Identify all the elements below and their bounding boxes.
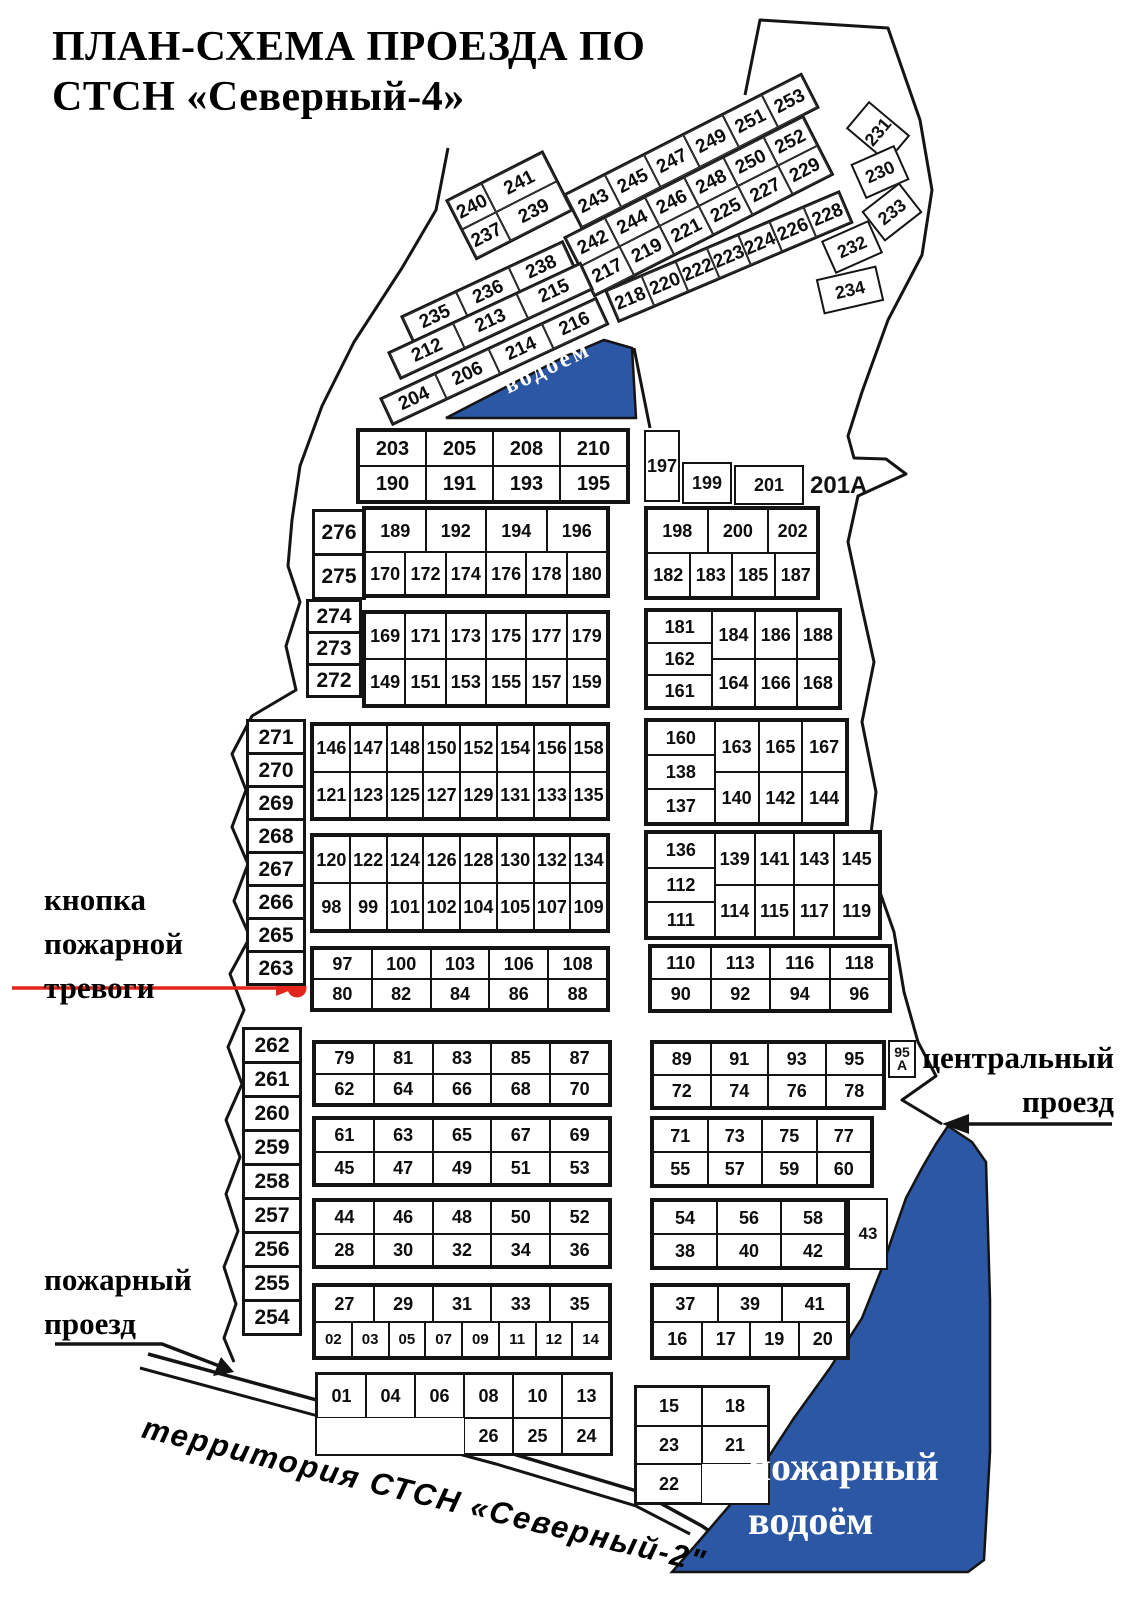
plot-05: 05 [389, 1322, 426, 1358]
plot-block-160-144: 160138137163140165142167144 [644, 718, 849, 826]
plot-114: 114 [715, 885, 755, 937]
plot-101: 101 [387, 883, 424, 930]
plot-67: 67 [491, 1119, 550, 1152]
plot-145: 145 [834, 833, 879, 885]
plot-125: 125 [387, 772, 424, 819]
plot-16: 16 [653, 1322, 702, 1358]
plot-176: 176 [486, 552, 526, 595]
plot-168: 168 [797, 659, 839, 707]
plot-39: 39 [718, 1286, 783, 1322]
plot-row: 189192194196 [365, 509, 607, 552]
plot-43: 43 [848, 1198, 888, 1270]
plot-column-276-275: 276275 [312, 512, 366, 600]
plot-04: 04 [366, 1374, 415, 1418]
plot-15: 15 [636, 1387, 702, 1426]
plot-99: 99 [350, 883, 387, 930]
plot-189: 189 [365, 509, 426, 552]
plot-row: 2729313335 [315, 1286, 609, 1322]
fire-pond-label-line: водоём [748, 1494, 939, 1548]
plot-175: 175 [486, 613, 526, 659]
plot-column: 160138137 [647, 721, 715, 823]
plot-162: 162 [647, 643, 712, 675]
plot-102: 102 [423, 883, 460, 930]
plot-128: 128 [460, 836, 497, 883]
plot-66: 66 [433, 1074, 492, 1105]
title-line-1: ПЛАН-СХЕМА ПРОЕЗДА ПО [52, 22, 645, 72]
plot-70: 70 [550, 1074, 609, 1105]
plot-268: 268 [246, 818, 306, 854]
plot-block-61-53: 61636567694547495153 [312, 1116, 612, 1187]
plot-75: 75 [762, 1119, 817, 1152]
plot-148: 148 [387, 725, 424, 772]
plot-163: 163 [715, 721, 759, 772]
plot-14: 14 [572, 1322, 609, 1358]
plot-198: 198 [647, 509, 708, 553]
plot-109: 109 [570, 883, 607, 930]
plot-91: 91 [711, 1043, 769, 1075]
plot-51: 51 [491, 1152, 550, 1185]
plot-147: 147 [350, 725, 387, 772]
plot-116: 116 [770, 947, 830, 979]
plot-22: 22 [636, 1464, 702, 1503]
plot-block-79-70: 79818385876264666870 [312, 1040, 612, 1107]
plot-03: 03 [352, 1322, 389, 1358]
plot-104: 104 [460, 883, 497, 930]
plot-row: 89919395 [653, 1043, 883, 1075]
plot-row: 170172174176178180 [365, 552, 607, 595]
plot-07: 07 [425, 1322, 462, 1358]
plot-150: 150 [423, 725, 460, 772]
plot-141: 141 [755, 833, 795, 885]
plot-135: 135 [570, 772, 607, 819]
plot-81: 81 [374, 1043, 433, 1074]
plot-block-120-109: 1201221241261281301321349899101102104105… [310, 833, 610, 933]
plot-185: 185 [732, 553, 775, 597]
plot-columns: 181162161184164186166188168 [647, 611, 839, 707]
plot-58: 58 [781, 1201, 845, 1234]
plot-28: 28 [315, 1234, 374, 1267]
plot-119: 119 [834, 885, 879, 937]
plot-row: 4446485052 [315, 1201, 609, 1234]
plot-block-169-159: 169171173175177179149151153155157159 [362, 610, 610, 708]
plot-201A-label: 201A [810, 472, 867, 500]
plot-129: 129 [460, 772, 497, 819]
plot-165: 165 [759, 721, 803, 772]
plot-row: 203205208210 [359, 431, 627, 466]
plot-84: 84 [431, 979, 490, 1009]
plot-block-97-88: 971001031061088082848688 [310, 946, 610, 1012]
plot-row: 384042 [653, 1234, 845, 1267]
plot-105: 105 [497, 883, 534, 930]
plot-block-54-42: 545658384042 [650, 1198, 848, 1270]
plot-195: 195 [560, 466, 627, 501]
plot-block-181-168: 181162161184164186166188168 [644, 608, 842, 710]
plot-08: 08 [464, 1374, 513, 1418]
plot-block-198-187: 198200202182183185187 [644, 506, 820, 600]
plot-271: 271 [246, 719, 306, 755]
plot-row: 120122124126128130132134 [313, 836, 607, 883]
plot-row: 262524 [317, 1418, 611, 1454]
fire-passage-label: пожарный проезд [44, 1258, 192, 1346]
plot-120: 120 [313, 836, 350, 883]
plot-36: 36 [550, 1234, 609, 1267]
plot-54: 54 [653, 1201, 717, 1234]
plot-130: 130 [497, 836, 534, 883]
plot-18: 18 [702, 1387, 768, 1426]
plot-columns: 160138137163140165142167144 [647, 721, 846, 823]
plot-column-274-272: 274273272 [306, 602, 362, 698]
plot-140: 140 [715, 772, 759, 823]
plot-197: 197 [644, 430, 680, 502]
plot-194: 194 [486, 509, 547, 552]
title-line-2: СТСН «Северный-4» [52, 72, 645, 122]
plot-56: 56 [717, 1201, 781, 1234]
plot-71: 71 [653, 1119, 708, 1152]
plot-49: 49 [433, 1152, 492, 1185]
plot-column: 184164 [712, 611, 754, 707]
plot-156: 156 [534, 725, 571, 772]
plot-row: 8082848688 [313, 979, 607, 1009]
plot-row: 110113116118 [651, 947, 889, 979]
plot-154: 154 [497, 725, 534, 772]
plot-274: 274 [306, 599, 362, 634]
plot-column: 186166 [755, 611, 797, 707]
plot-143: 143 [794, 833, 834, 885]
plot-107: 107 [534, 883, 571, 930]
plot-159: 159 [567, 659, 607, 705]
plot-196: 196 [547, 509, 608, 552]
plot-69: 69 [550, 1119, 609, 1152]
plot-20: 20 [799, 1322, 848, 1358]
plot-103: 103 [431, 949, 490, 979]
plot-72: 72 [653, 1075, 711, 1107]
fire-alarm-label-line: тревоги [44, 966, 183, 1010]
plot-19: 19 [750, 1322, 799, 1358]
plot-26: 26 [464, 1418, 513, 1454]
plot-35: 35 [550, 1286, 609, 1322]
plot-24: 24 [562, 1418, 611, 1454]
plot-row: 7981838587 [315, 1043, 609, 1074]
plot-94: 94 [770, 979, 830, 1011]
plot-117: 117 [794, 885, 834, 937]
plot-76: 76 [768, 1075, 826, 1107]
plot-97: 97 [313, 949, 372, 979]
plot-column: 163140 [715, 721, 759, 823]
plot-62: 62 [315, 1074, 374, 1105]
plot-200: 200 [708, 509, 769, 553]
plot-12: 12 [536, 1322, 573, 1358]
plot-block-01-24: 010406081013262524 [315, 1372, 613, 1456]
plot-180: 180 [567, 552, 607, 595]
fire-passage-arrow-line [55, 1344, 222, 1367]
plot-37: 37 [653, 1286, 718, 1322]
plot-265: 265 [246, 917, 306, 953]
plot-139: 139 [715, 833, 755, 885]
plot-column: 165142 [759, 721, 803, 823]
plot-137: 137 [647, 789, 715, 823]
plot-row: 9899101102104105107109 [313, 883, 607, 930]
plot-27: 27 [315, 1286, 374, 1322]
plot-row: 373941 [653, 1286, 847, 1322]
plot-127: 127 [423, 772, 460, 819]
plot-263: 263 [246, 950, 306, 986]
plot-74: 74 [711, 1075, 769, 1107]
plot-208: 208 [493, 431, 560, 466]
plot-row: 149151153155157159 [365, 659, 607, 705]
plot-10: 10 [513, 1374, 562, 1418]
plot-65: 65 [433, 1119, 492, 1152]
plot-row: 6163656769 [315, 1119, 609, 1152]
plot-258: 258 [242, 1163, 302, 1200]
plot-block-37-20: 37394116171920 [650, 1283, 850, 1360]
central-passage-label-line: проезд [908, 1080, 1114, 1124]
plot-columns: 136112111139114141115143117145119 [647, 833, 879, 937]
plot-row: 6264666870 [315, 1074, 609, 1105]
plot-55: 55 [653, 1152, 708, 1185]
plot-275: 275 [312, 553, 366, 600]
plot-30: 30 [374, 1234, 433, 1267]
plot-82: 82 [372, 979, 431, 1009]
plot-block-136-119: 136112111139114141115143117145119 [644, 830, 882, 940]
plot-266: 266 [246, 884, 306, 920]
ghost-cell [415, 1418, 464, 1454]
plot-199: 199 [682, 462, 732, 504]
plot-132: 132 [534, 836, 571, 883]
plot-183: 183 [690, 553, 733, 597]
plot-row: 2830323436 [315, 1234, 609, 1267]
plot-row: 010406081013 [317, 1374, 611, 1418]
plot-85: 85 [491, 1043, 550, 1074]
plot-row: 121123125127129131133135 [313, 772, 607, 819]
plot-row: 182183185187 [647, 553, 817, 597]
plot-173: 173 [446, 613, 486, 659]
plot-63: 63 [374, 1119, 433, 1152]
plot-172: 172 [405, 552, 445, 595]
plot-59: 59 [762, 1152, 817, 1185]
plot-25: 25 [513, 1418, 562, 1454]
plot-53: 53 [550, 1152, 609, 1185]
plot-83: 83 [433, 1043, 492, 1074]
plot-column: 145119 [834, 833, 879, 937]
plot-276: 276 [312, 509, 366, 556]
plot-202: 202 [768, 509, 817, 553]
fire-passage-label-line: проезд [44, 1302, 192, 1346]
plot-111: 111 [647, 902, 715, 937]
fire-passage-label-line: пожарный [44, 1258, 192, 1302]
plot-184: 184 [712, 611, 754, 659]
plot-52: 52 [550, 1201, 609, 1234]
plot-68: 68 [491, 1074, 550, 1105]
plot-161: 161 [647, 675, 712, 707]
plot-02: 02 [315, 1322, 352, 1358]
plot-210: 210 [560, 431, 627, 466]
plot-17: 17 [702, 1322, 751, 1358]
plot-203: 203 [359, 431, 426, 466]
plot-92: 92 [711, 979, 771, 1011]
plot-106: 106 [489, 949, 548, 979]
plot-block-146-135: 1461471481501521541561581211231251271291… [310, 722, 610, 821]
plot-136: 136 [647, 833, 715, 868]
plot-178: 178 [526, 552, 566, 595]
plot-column: 167144 [802, 721, 846, 823]
plot-86: 86 [489, 979, 548, 1009]
plot-110: 110 [651, 947, 711, 979]
plot-row: 545658 [653, 1201, 845, 1234]
plot-48: 48 [433, 1201, 492, 1234]
plot-273: 273 [306, 631, 362, 666]
plot-191: 191 [426, 466, 493, 501]
plot-38: 38 [653, 1234, 717, 1267]
plot-155: 155 [486, 659, 526, 705]
plot-88: 88 [548, 979, 607, 1009]
plot-06: 06 [415, 1374, 464, 1418]
fire-pond-label-line: пожарный [748, 1440, 939, 1494]
plot-09: 09 [462, 1322, 499, 1358]
plot-134: 134 [570, 836, 607, 883]
plot-166: 166 [755, 659, 797, 707]
plot-126: 126 [423, 836, 460, 883]
plot-block-71-60: 7173757755575960 [650, 1116, 874, 1188]
plot-112: 112 [647, 868, 715, 903]
plot-257: 257 [242, 1197, 302, 1234]
plot-181: 181 [647, 611, 712, 643]
plot-205: 205 [426, 431, 493, 466]
fire-alarm-label: кнопка пожарной тревоги [44, 878, 183, 1010]
ghost-cell [366, 1418, 415, 1454]
plot-158: 158 [570, 725, 607, 772]
plot-block-110-96: 11011311611890929496 [648, 944, 892, 1013]
plot-79: 79 [315, 1043, 374, 1074]
plot-186: 186 [755, 611, 797, 659]
plot-269: 269 [246, 785, 306, 821]
plot-column: 143117 [794, 833, 834, 937]
plot-100: 100 [372, 949, 431, 979]
plot-row: 55575960 [653, 1152, 871, 1185]
plot-41: 41 [782, 1286, 847, 1322]
fire-alarm-label-line: кнопка [44, 878, 183, 922]
plot-row: 72747678 [653, 1075, 883, 1107]
plot-190: 190 [359, 466, 426, 501]
plot-164: 164 [712, 659, 754, 707]
plot-50: 50 [491, 1201, 550, 1234]
plot-93: 93 [768, 1043, 826, 1075]
plot-89: 89 [653, 1043, 711, 1075]
plot-13: 13 [562, 1374, 611, 1418]
plot-block-203-195: 203205208210190191193195 [356, 428, 630, 504]
plot-row: 16171920 [653, 1322, 847, 1358]
plot-column: 136112111 [647, 833, 715, 937]
plot-113: 113 [711, 947, 771, 979]
plot-row: 146147148150152154156158 [313, 725, 607, 772]
plot-124: 124 [387, 836, 424, 883]
plot-254: 254 [242, 1299, 302, 1336]
plot-87: 87 [550, 1043, 609, 1074]
plot-95: 95 [826, 1043, 884, 1075]
plot-174: 174 [446, 552, 486, 595]
plot-29: 29 [374, 1286, 433, 1322]
plot-267: 267 [246, 851, 306, 887]
central-passage-label: центральный проезд [908, 1036, 1114, 1124]
fire-alarm-label-line: пожарной [44, 922, 183, 966]
plot-23: 23 [636, 1426, 702, 1465]
plot-45: 45 [315, 1152, 374, 1185]
plot-scheme-map: ПЛАН-СХЕМА ПРОЕЗДА ПО СТСН «Северный-4» … [0, 0, 1139, 1600]
plot-122: 122 [350, 836, 387, 883]
plot-95A-line: A [897, 1059, 907, 1072]
plot-column: 139114 [715, 833, 755, 937]
plot-170: 170 [365, 552, 405, 595]
plot-row: 71737577 [653, 1119, 871, 1152]
plot-261: 261 [242, 1061, 302, 1098]
plot-193: 193 [493, 466, 560, 501]
plot-192: 192 [426, 509, 487, 552]
plot-187: 187 [775, 553, 818, 597]
plot-151: 151 [405, 659, 445, 705]
plot-118: 118 [830, 947, 890, 979]
plot-131: 131 [497, 772, 534, 819]
plot-column-262-254: 262261260259258257256255254 [242, 1030, 302, 1336]
plot-167: 167 [802, 721, 846, 772]
plot-144: 144 [802, 772, 846, 823]
plot-201: 201 [734, 465, 804, 505]
plot-255: 255 [242, 1265, 302, 1302]
plot-152: 152 [460, 725, 497, 772]
plot-column: 141115 [755, 833, 795, 937]
central-passage-label-line: центральный [908, 1036, 1114, 1080]
plot-90: 90 [651, 979, 711, 1011]
plot-row: 1518 [636, 1387, 768, 1426]
plot-46: 46 [374, 1201, 433, 1234]
plot-33: 33 [491, 1286, 550, 1322]
plot-block-89-78: 8991939572747678 [650, 1040, 886, 1110]
plot-64: 64 [374, 1074, 433, 1105]
plot-01: 01 [317, 1374, 366, 1418]
plot-169: 169 [365, 613, 405, 659]
plot-row: 97100103106108 [313, 949, 607, 979]
plot-80: 80 [313, 979, 372, 1009]
plot-160: 160 [647, 721, 715, 755]
plot-78: 78 [826, 1075, 884, 1107]
plot-column-271-263: 271270269268267266265263 [246, 722, 306, 986]
plot-262: 262 [242, 1027, 302, 1064]
plot-272: 272 [306, 663, 362, 698]
plot-115: 115 [755, 885, 795, 937]
plot-block-27-14: 27293133350203050709111214 [312, 1283, 612, 1360]
fire-pond-label: пожарный водоём [748, 1440, 939, 1548]
plot-153: 153 [446, 659, 486, 705]
plot-146: 146 [313, 725, 350, 772]
plot-31: 31 [433, 1286, 492, 1322]
plot-block-189-180: 189192194196170172174176178180 [362, 506, 610, 598]
plot-259: 259 [242, 1129, 302, 1166]
plot-11: 11 [499, 1322, 536, 1358]
plot-row: 190191193195 [359, 466, 627, 501]
plot-123: 123 [350, 772, 387, 819]
plot-44: 44 [315, 1201, 374, 1234]
plot-column: 181162161 [647, 611, 712, 707]
plot-149: 149 [365, 659, 405, 705]
plot-108: 108 [548, 949, 607, 979]
plot-121: 121 [313, 772, 350, 819]
plot-142: 142 [759, 772, 803, 823]
plot-188: 188 [797, 611, 839, 659]
plot-177: 177 [526, 613, 566, 659]
plot-47: 47 [374, 1152, 433, 1185]
plot-34: 34 [491, 1234, 550, 1267]
plot-260: 260 [242, 1095, 302, 1132]
plot-171: 171 [405, 613, 445, 659]
plot-row: 90929496 [651, 979, 889, 1011]
